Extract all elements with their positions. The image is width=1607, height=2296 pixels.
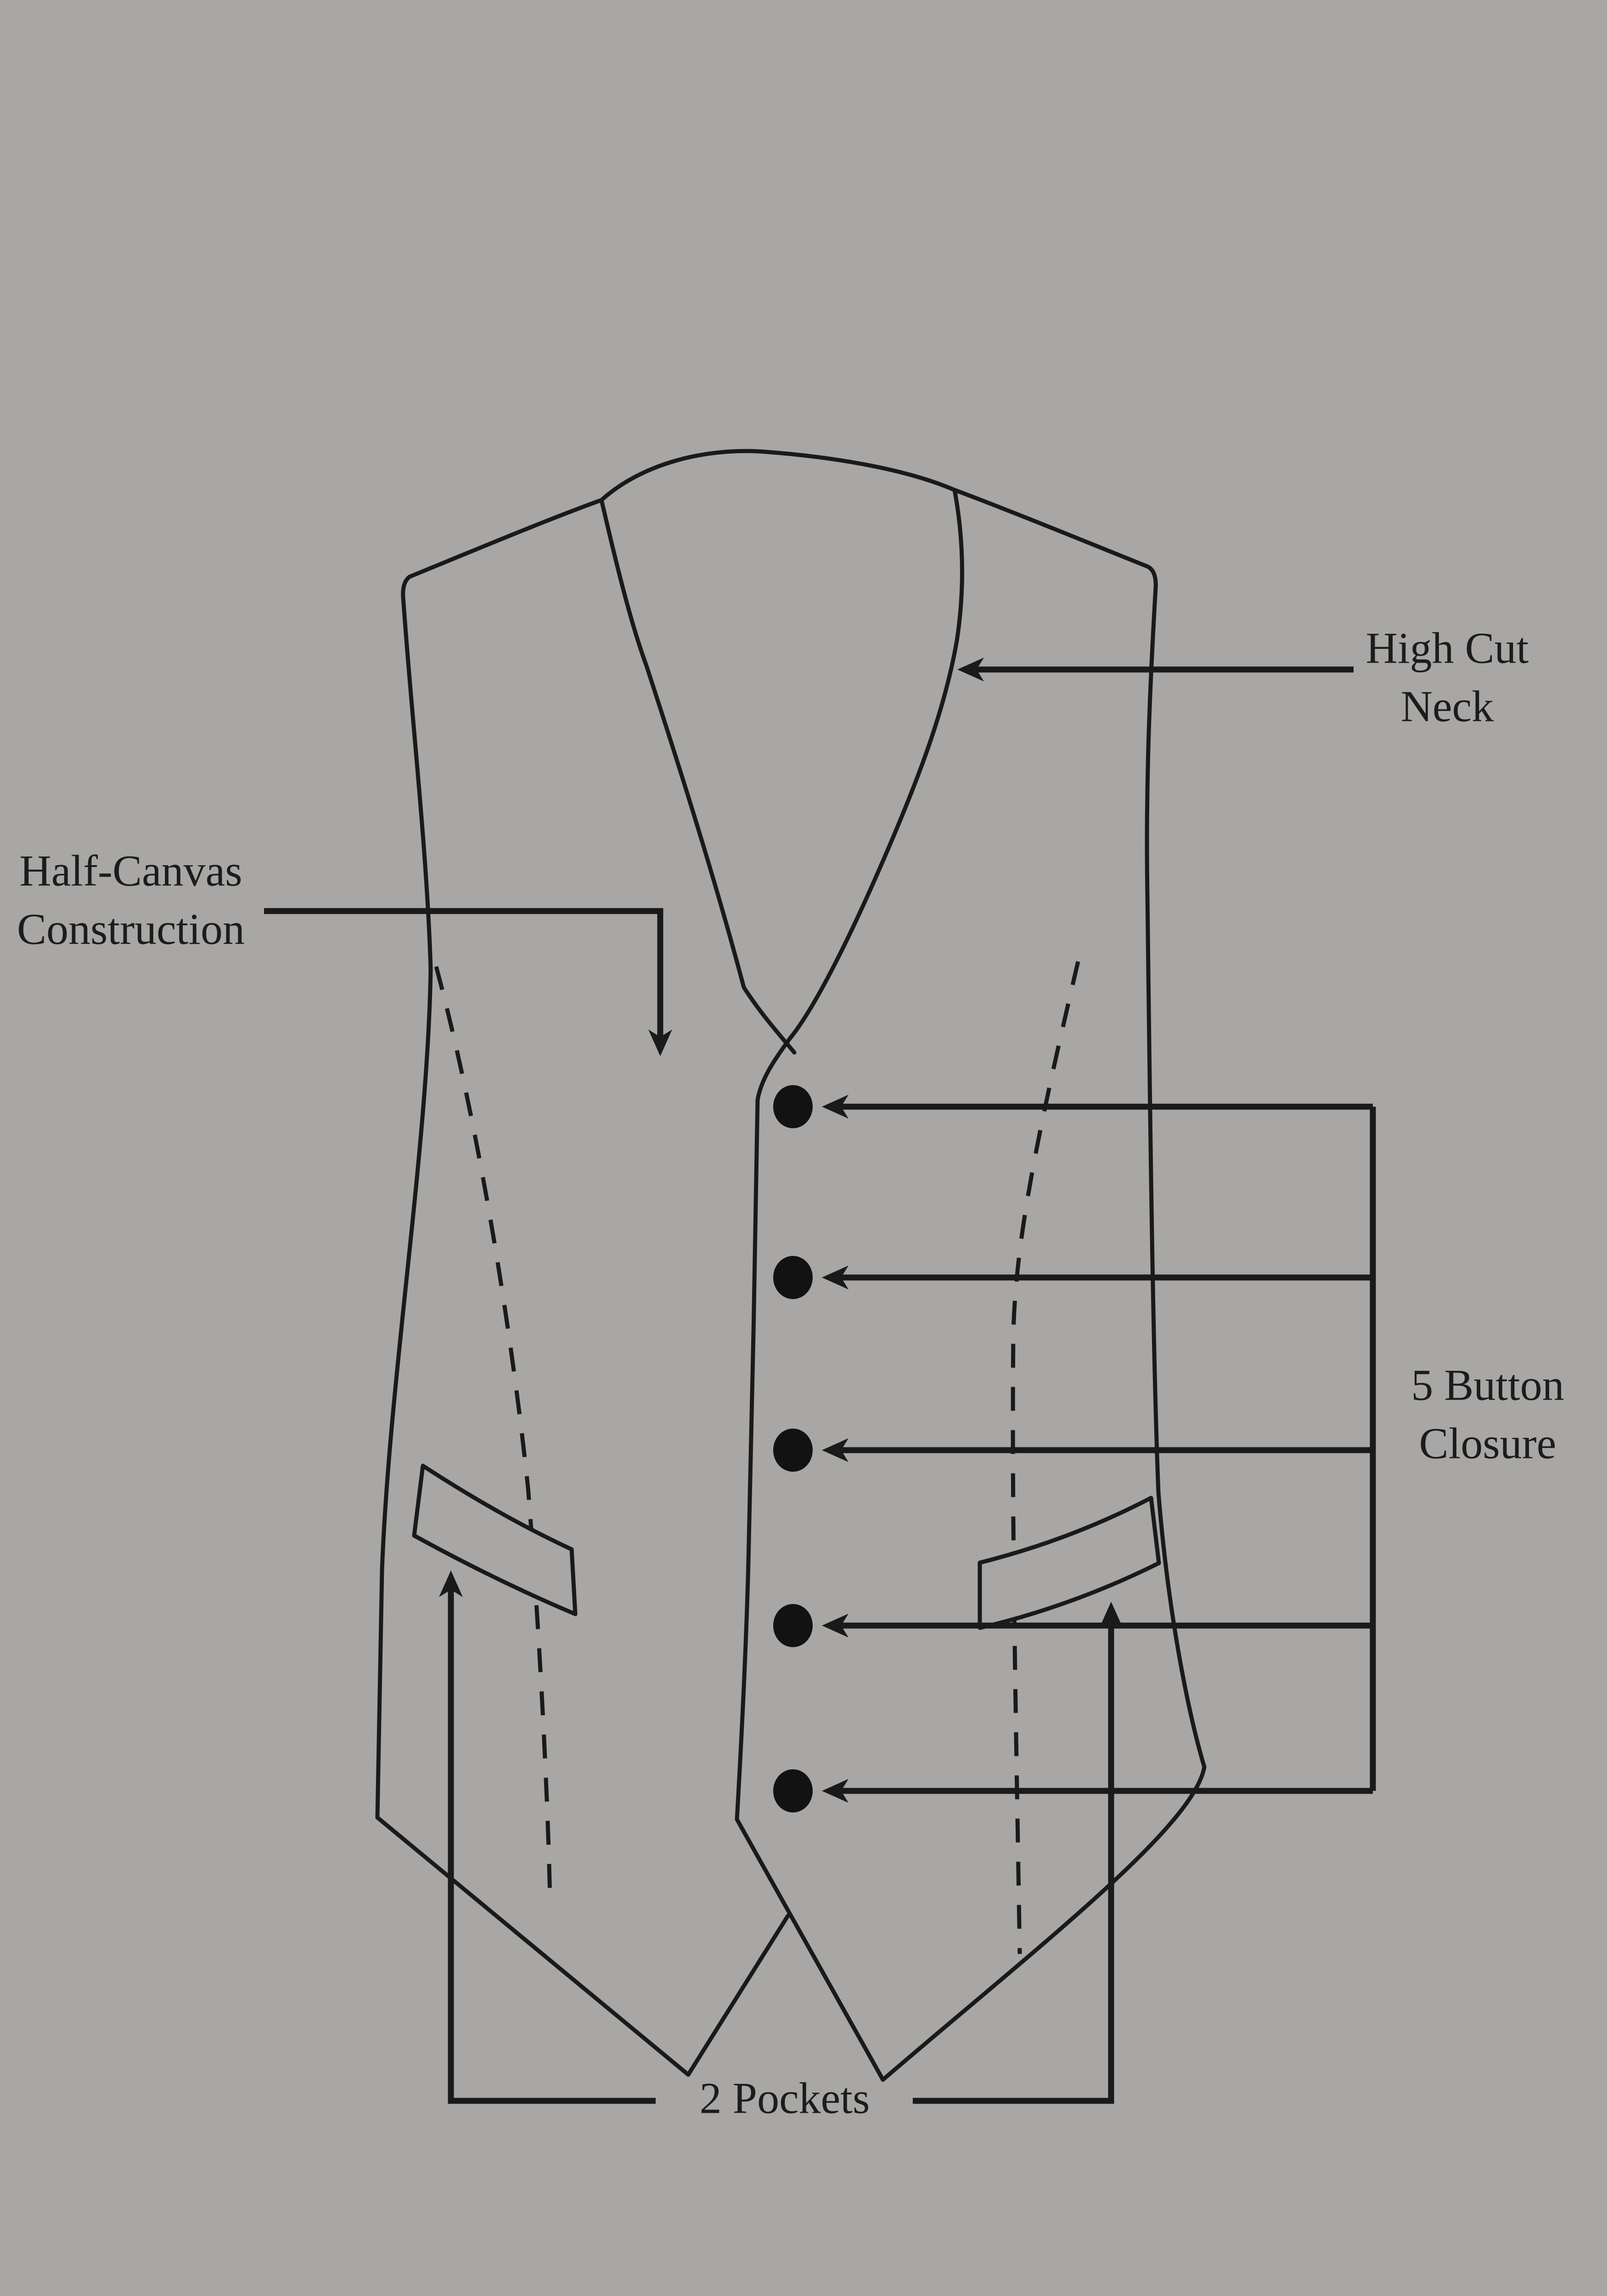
vest-right-lapel-front-edge (737, 490, 962, 2080)
annotation-five-button-closure: 5 Button Closure (1411, 1356, 1564, 1472)
button-dot (773, 1085, 813, 1128)
annotation-line: Neck (1366, 677, 1529, 736)
annotation-two-pockets: 2 Pockets (700, 2070, 870, 2128)
annotation-line: 2 Pockets (700, 2070, 870, 2128)
vest-spec-diagram: High Cut Neck Half-Canvas Construction 5… (0, 0, 1607, 2296)
annotation-line: 5 Button (1411, 1356, 1564, 1414)
left-pocket (414, 1466, 575, 1614)
vest-drawing (0, 0, 1607, 2296)
button-dot (773, 1429, 813, 1472)
right-panel-seam-dashed (1013, 962, 1078, 1954)
vest-right-side (883, 490, 1204, 2080)
annotation-line: Closure (1411, 1414, 1564, 1473)
button-dot (773, 1256, 813, 1299)
annotation-half-canvas: Half-Canvas Construction (17, 842, 245, 958)
button-dot (773, 1604, 813, 1647)
right-pocket (980, 1498, 1159, 1628)
annotation-line: Construction (17, 900, 245, 958)
vest-collar-dome (601, 451, 955, 500)
vest-left-lapel (601, 500, 794, 1052)
annotation-line: Half-Canvas (17, 842, 245, 900)
button-dot (773, 1769, 813, 1812)
annotation-high-cut-neck: High Cut Neck (1366, 619, 1529, 735)
annotation-line: High Cut (1366, 619, 1529, 677)
half-canvas-leader (264, 911, 660, 1037)
vest-left-side (377, 500, 788, 2075)
